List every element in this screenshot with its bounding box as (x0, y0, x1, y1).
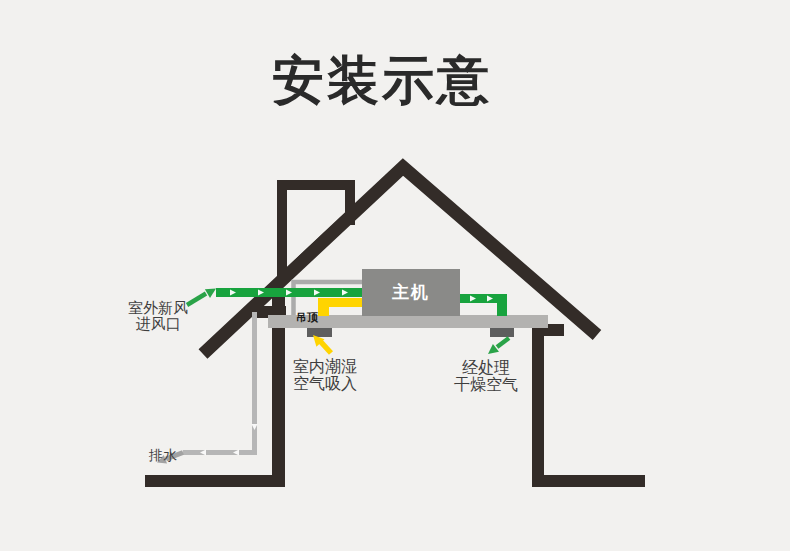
processed-dry-air-line1: 经处理 (446, 359, 526, 376)
outdoor-fresh-air-label: 室外新风 进风口 (118, 300, 198, 332)
outdoor-fresh-air-line2: 进风口 (118, 316, 198, 332)
right-floor (532, 475, 645, 487)
supply-vent (490, 328, 514, 337)
ceiling-label: 吊顶 (296, 310, 318, 325)
left-floor (145, 475, 285, 487)
indoor-humid-air-label: 室内潮湿 空气吸入 (285, 358, 365, 392)
processed-dry-air-label: 经处理 干燥空气 (446, 359, 526, 393)
indoor-humid-air-line2: 空气吸入 (285, 375, 365, 392)
indoor-humid-air-line1: 室内潮湿 (285, 358, 365, 375)
right-wall (532, 324, 544, 487)
outdoor-fresh-air-line1: 室外新风 (118, 300, 198, 316)
humid-air-arrow-icon (313, 335, 331, 353)
dry-air-duct (460, 294, 507, 316)
page-title: 安装示意 (235, 46, 529, 116)
intake-vent (307, 328, 332, 337)
humid-air-duct (318, 298, 362, 316)
installation-diagram: 安装示意 室外新风 进风口 吊顶 主机 室内潮湿 空气吸入 经处理 干燥空气 排… (0, 0, 790, 551)
dry-air-arrow-icon (488, 338, 509, 354)
drain-label: 排水 (149, 447, 177, 464)
processed-dry-air-line2: 干燥空气 (446, 376, 526, 393)
main-unit-label: 主机 (362, 269, 460, 316)
